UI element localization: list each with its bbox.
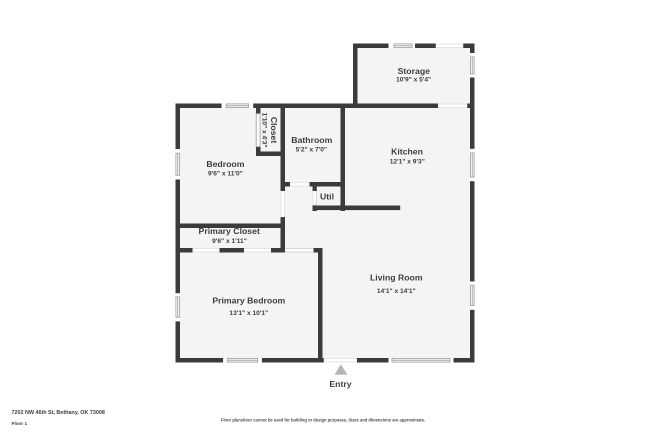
svg-text:Living Room: Living Room [370,272,423,282]
svg-text:7202 NW 46th St, Bethany, OK 7: 7202 NW 46th St, Bethany, OK 73008 [12,410,105,416]
svg-text:12'1" x 9'3": 12'1" x 9'3" [390,159,425,166]
svg-text:Floor 1: Floor 1 [12,421,28,426]
svg-text:Bathroom: Bathroom [291,135,332,145]
svg-text:Util: Util [320,191,334,201]
svg-text:13'1" x 10'1": 13'1" x 10'1" [229,310,268,317]
svg-text:14'1" x 14'1": 14'1" x 14'1" [377,288,416,295]
svg-text:Bedroom: Bedroom [206,159,244,169]
svg-text:5'2" x 7'0": 5'2" x 7'0" [296,147,327,154]
svg-text:Primary Closet: Primary Closet [199,226,260,236]
svg-text:10'9" x 5'4": 10'9" x 5'4" [396,76,431,83]
svg-text:Floor plans/tour cannot be use: Floor plans/tour cannot be used for buil… [221,417,425,422]
svg-text:Primary Bedroom: Primary Bedroom [212,296,285,306]
svg-text:1'10" x 4'3": 1'10" x 4'3" [261,112,268,147]
svg-text:Storage: Storage [398,66,431,76]
svg-text:9'6" x 11'0": 9'6" x 11'0" [208,171,243,178]
svg-text:Entry: Entry [329,379,351,389]
svg-text:Closet: Closet [269,117,279,144]
svg-text:Kitchen: Kitchen [391,146,423,156]
svg-text:9'6" x 1'11": 9'6" x 1'11" [212,238,247,245]
